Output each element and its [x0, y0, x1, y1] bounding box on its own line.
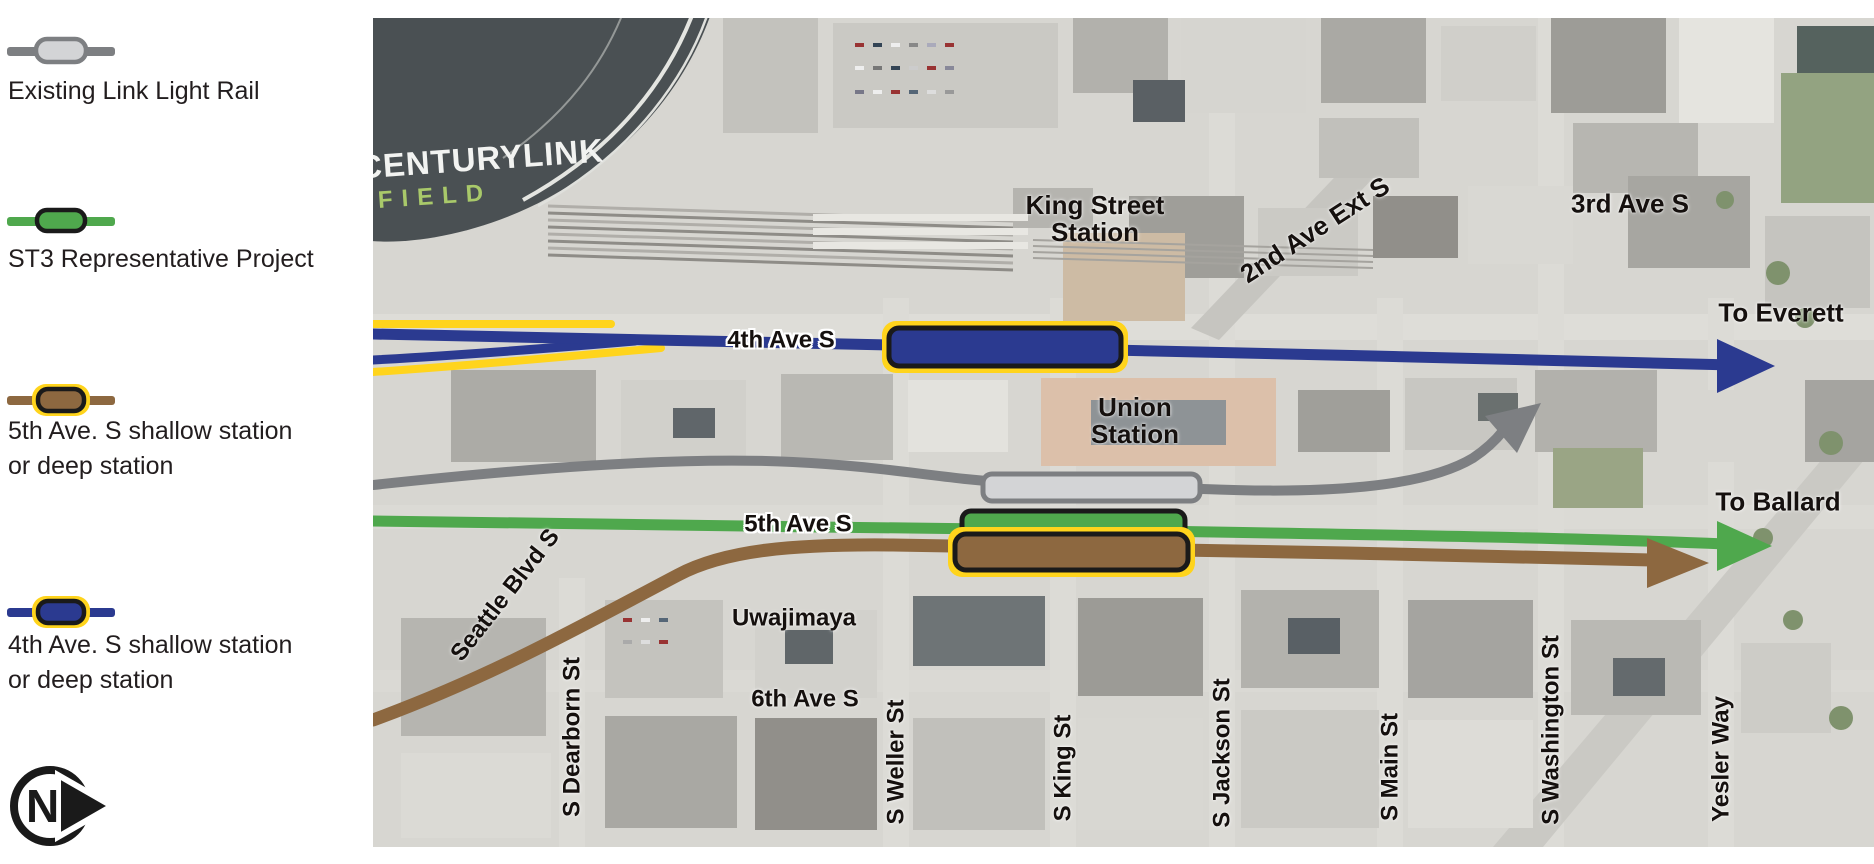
- label-s-king-st: S King St: [1050, 715, 1077, 822]
- label-s-dearborn-st: S Dearborn St: [559, 657, 586, 817]
- label-yesler-way: Yesler Way: [1708, 696, 1735, 822]
- label-king-street-station: King Street Station: [1026, 192, 1165, 246]
- 4th-ave-station-box: [889, 328, 1121, 366]
- label-s-main-st: S Main St: [1377, 713, 1404, 821]
- map-canvas: CENTURYLINK FIELD King Street Station 2n…: [373, 18, 1874, 847]
- label-to-everett: To Everett: [1718, 300, 1843, 327]
- label-3rd-ave-s: 3rd Ave S: [1571, 191, 1689, 218]
- transit-map-figure: Existing Link Light Rail ST3 Representat…: [0, 0, 1874, 864]
- label-5th-ave-s: 5th Ave S: [744, 511, 852, 538]
- legend-label-existing-link: Existing Link Light Rail: [8, 74, 260, 109]
- legend-label-5th-ave-2: or deep station: [8, 449, 173, 484]
- label-6th-ave-s: 6th Ave S: [751, 686, 859, 713]
- label-s-jackson-st: S Jackson St: [1209, 678, 1236, 827]
- st3-symbol: [6, 204, 116, 238]
- existing-link-station-box: [983, 474, 1200, 501]
- label-s-washington-st: S Washington St: [1538, 635, 1565, 825]
- legend-label-4th-ave-2: or deep station: [8, 663, 173, 698]
- legend-label-st3: ST3 Representative Project: [8, 242, 314, 277]
- legend-label-4th-ave-1: 4th Ave. S shallow station: [8, 628, 292, 663]
- 5th-ave-station-box: [955, 534, 1188, 570]
- north-letter: N: [26, 780, 59, 832]
- label-uwajimaya: Uwajimaya: [732, 605, 856, 632]
- existing-link-symbol: [6, 34, 116, 68]
- label-to-ballard: To Ballard: [1715, 489, 1840, 516]
- north-arrow: N: [8, 758, 120, 854]
- label-s-weller-st: S Weller St: [883, 700, 910, 825]
- 4th-ave-symbol: [6, 592, 118, 632]
- label-4th-ave-s: 4th Ave S: [727, 327, 835, 354]
- label-union-station: Union Station: [1091, 394, 1179, 448]
- legend-label-5th-ave-1: 5th Ave. S shallow station: [8, 414, 292, 449]
- legend: Existing Link Light Rail ST3 Representat…: [0, 0, 373, 864]
- north-triangle-icon: [58, 775, 112, 837]
